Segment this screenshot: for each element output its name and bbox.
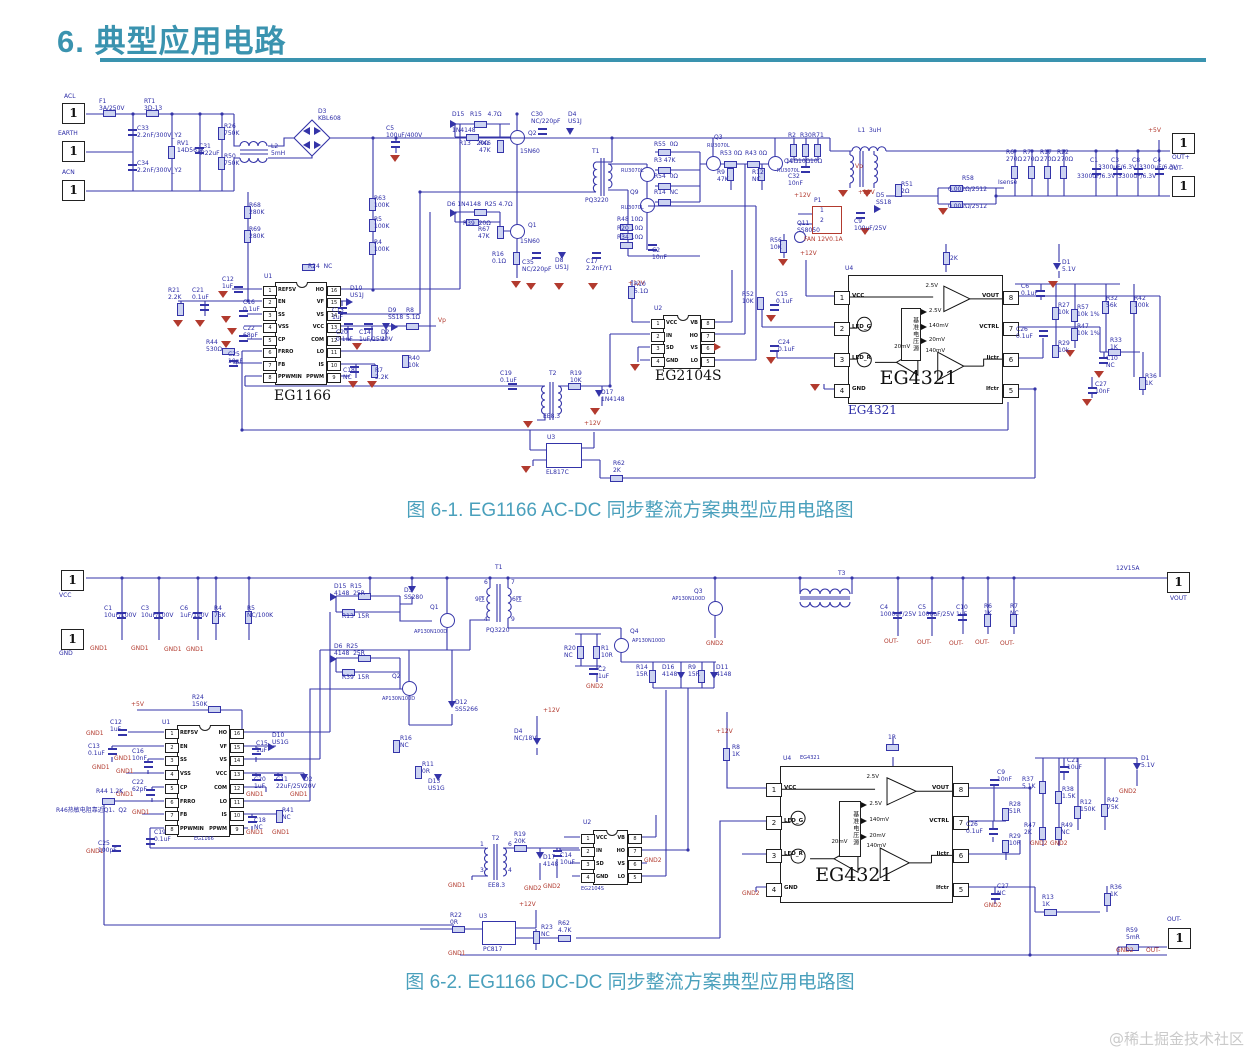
pin-name: VCTRL [979, 324, 999, 330]
resistor [1028, 166, 1035, 179]
component-label: GND2 [984, 903, 1002, 910]
pin-ho: 16 [327, 286, 341, 296]
component-label: R48 10Ω [617, 217, 643, 224]
component-label: D4 NC/18V [514, 729, 536, 743]
pin-name: VCC [313, 324, 324, 330]
component-label: R13 1K [1042, 895, 1054, 909]
component-label: R12 150K [1080, 800, 1095, 814]
component-label: R34 10Ω [617, 235, 643, 242]
connector-out-neg: 1 [1172, 176, 1195, 197]
component-label: U3 [479, 914, 487, 921]
component-label: C20 1uF [254, 777, 266, 791]
component-label: GND1 [246, 792, 264, 799]
component-label: R32 56k [1106, 296, 1118, 310]
component-label: GND2 [742, 891, 760, 898]
pin-vs: 6 [701, 344, 715, 354]
component-label: R40 10k [408, 356, 420, 370]
pin-fb: 7 [165, 811, 179, 821]
component-label: GND1 [90, 646, 108, 653]
component-label: OUT- [884, 639, 898, 646]
pin-name: VF [220, 744, 227, 750]
pin-ss: 3 [165, 756, 179, 766]
pin-lo: 5 [628, 873, 642, 883]
ground-icon [1048, 281, 1058, 288]
pin-name: VCC [216, 771, 227, 777]
resistor [415, 766, 422, 779]
component-label: OUT- [1167, 917, 1181, 924]
component-label: D6 1N4148 R25 4.7Ω [447, 202, 513, 209]
pin-name: LED_G [852, 324, 871, 330]
component-label: 10Ω [810, 159, 822, 166]
ic-eg1166-fig2: 1REF5V2EN3SS4VSS5CP6FRRO7FB8PPWMIN16HO15… [177, 725, 230, 837]
component-label: +12V [543, 708, 560, 715]
component-label: R5 100K [374, 217, 389, 231]
capacitor [391, 141, 400, 148]
component-label: 1R [888, 735, 896, 742]
component-label: 15N60 [520, 239, 540, 246]
component-label: D13 US1G [428, 779, 445, 793]
component-label: 6匝 [512, 597, 522, 604]
resistor [757, 297, 764, 310]
component-label: U1 [162, 720, 170, 727]
pin-in: 2 [651, 332, 665, 342]
resistor [558, 935, 571, 942]
pin-name: PPWMIN [180, 826, 204, 832]
component-label: 4 [508, 868, 512, 875]
component-label: R63 100K [374, 196, 389, 210]
component-label: R55 0Ω [654, 142, 678, 149]
component-label: R62 4.7K [558, 921, 571, 935]
ic-eg4321-fig2: 1VCC2LED_G3LED_R4GND8VOUT7VCTRL6Iictr5If… [780, 766, 953, 903]
component-label: R47 10k 1% [1077, 324, 1100, 338]
component-label: D9 SS18 [388, 308, 403, 322]
connector-earth: 1 [62, 141, 85, 162]
component-label: T3 [838, 571, 845, 578]
component-label: C4 1000uF/25V [880, 605, 916, 619]
pin-name: HO [316, 287, 324, 293]
resistor [1002, 840, 1009, 853]
component-label: GND1 [132, 810, 150, 817]
ground-icon [838, 190, 848, 197]
ground-icon [630, 364, 640, 371]
component-label: C15 1uF [256, 741, 268, 755]
pin-gnd: 4 [766, 883, 782, 897]
ground-icon [390, 155, 400, 162]
component-label: R43 0Ω [745, 151, 767, 158]
component-label: R9 15R [688, 665, 700, 679]
component-label: C24 0.1uF [778, 340, 795, 354]
capacitor [108, 748, 117, 755]
mosfet-icon [614, 638, 629, 653]
diode-icon [450, 209, 457, 217]
component-label: ACN [62, 170, 75, 177]
component-label: OUT- [949, 641, 963, 648]
component-label: +12V [858, 190, 875, 197]
component-label: R11 0R [422, 762, 434, 776]
component-label: 0.002Ω/2512 [948, 204, 987, 211]
pin-name: GND [784, 885, 798, 891]
capacitor [128, 164, 137, 171]
pin-vcc: 1 [766, 783, 782, 797]
pin-ifctr: 5 [1003, 384, 1019, 398]
ground-icon [1094, 371, 1104, 378]
resistor [649, 670, 656, 683]
ground-icon [938, 208, 948, 215]
capacitor [1039, 330, 1048, 337]
component-label: D15 R15 4.7Ω [452, 112, 502, 119]
resistor [1039, 781, 1046, 794]
component-label: U2 [583, 820, 591, 827]
component-label: R53 0Ω [720, 151, 742, 158]
pin-name: VOUT [932, 785, 949, 791]
resistor [1011, 166, 1018, 179]
pin-name: Ifctr [936, 885, 949, 891]
component-label: R33 1K [1110, 338, 1122, 352]
resistor [658, 149, 671, 156]
component-label: R54 0Ω [654, 174, 678, 181]
diode-icon [1133, 763, 1141, 770]
pin-name: VF [317, 299, 324, 305]
component-label: Q4 [630, 629, 639, 636]
resistor [514, 845, 527, 852]
component-label: Q3 [694, 589, 703, 596]
component-label: GND1 [86, 849, 104, 856]
component-label: L1 3uH [858, 128, 881, 135]
component-label: R4 100K [374, 240, 389, 254]
component-label: R27 10k [1058, 303, 1070, 317]
component-box [482, 921, 516, 945]
resistor [814, 144, 821, 157]
component-label: D10 US1G [272, 733, 289, 747]
component-label: D1 5.1V [1062, 260, 1076, 274]
pin-en: 2 [165, 743, 179, 753]
component-label: R21 2.2K [168, 288, 181, 302]
component-label: C22 68pF [243, 326, 258, 340]
component-label: +12V [519, 902, 536, 909]
pin-name: COM [311, 337, 324, 343]
resistor [406, 323, 419, 330]
component-label: GND1 [448, 883, 466, 890]
pin-lo: 11 [230, 798, 244, 808]
pin-name: EN [278, 299, 286, 305]
pin-ho: 16 [230, 729, 244, 739]
component-label: GND1 [92, 765, 110, 772]
component-label: C10 NC [1106, 356, 1118, 370]
comparator-threshold: 20mV [894, 344, 910, 350]
chip-notch-icon [677, 315, 689, 321]
component-label: R49 NC [1061, 823, 1073, 837]
pin-ho: 7 [628, 847, 642, 857]
ground-icon [588, 283, 598, 290]
pin-name: LED_R [784, 851, 803, 857]
component-label: Isense [998, 180, 1017, 187]
ground-icon [227, 328, 237, 335]
resistor [452, 926, 465, 933]
pin-ho: 7 [701, 332, 715, 342]
pin-ppwm: 9 [230, 825, 244, 835]
component-label: VCC [59, 593, 71, 600]
diode-icon [1053, 263, 1061, 270]
pin-name: Iictr [936, 851, 949, 857]
component-label: GND1 [186, 647, 204, 654]
pin-lo: 5 [701, 357, 715, 367]
pin-frro: 6 [263, 348, 277, 358]
component-label: D17 1N4148 [601, 390, 625, 404]
component-label: T1 [495, 565, 502, 572]
component-label: D5 SS18 [876, 193, 891, 207]
component-label: +12V [584, 421, 601, 428]
capacitor [538, 128, 547, 135]
component-label: R59 5mR [1126, 928, 1140, 942]
threshold-label: 2.5V [929, 308, 942, 314]
component-label: C30 NC/220pF [531, 112, 560, 126]
pin-led_r: 3 [766, 849, 782, 863]
component-label: T2 [549, 371, 556, 378]
component-label: U3 [547, 435, 555, 442]
component-label: R68 280K [249, 203, 264, 217]
component-label: R6 1K [984, 604, 992, 618]
component-label: R29 10R [1009, 834, 1021, 848]
pin-vs: 6 [628, 860, 642, 870]
component-label: R22 270Ω [1057, 150, 1073, 164]
component-label: EG2104S [581, 887, 604, 893]
connector-gnd: 1 [61, 629, 84, 650]
component-label: RU3070L [621, 169, 644, 175]
ground-icon [348, 381, 358, 388]
comparator-threshold: 2.5V [867, 774, 880, 780]
component-label: L2 5mH [271, 144, 285, 158]
capacitor [532, 252, 541, 259]
component-label: R17 270Ω [1040, 150, 1056, 164]
component-label: D11 4148 [716, 665, 731, 679]
pin-name: VCTRL [929, 818, 949, 824]
component-label: U2 [654, 306, 662, 313]
arrow-icon [861, 834, 867, 840]
component-label: R51 2Ω [901, 182, 913, 196]
component-label: R6 270Ω [1006, 150, 1022, 164]
resistor [747, 161, 760, 168]
pin-name: VCC [784, 785, 796, 791]
ground-icon [810, 384, 820, 391]
pin-name: FRRO [278, 349, 293, 355]
component-label: R8 1K [732, 745, 740, 759]
component-label: R39 15R [342, 675, 369, 682]
component-label: R46 47K [479, 141, 491, 155]
component-label: 7 [511, 580, 515, 587]
resistor [658, 199, 671, 206]
pin-name: PPWM [306, 374, 324, 380]
pin-sd: 3 [651, 344, 665, 354]
component-label: C35 NC/220pF [522, 260, 551, 274]
connector-acl: 1 [62, 103, 85, 124]
component-label: GND1 [448, 951, 466, 958]
component-label: T1 [592, 149, 599, 156]
component-label: EE8.3 [488, 883, 505, 890]
pin-ppwmin: 8 [263, 373, 277, 383]
component-label: C21 0.1uF [192, 288, 209, 302]
component-label: C27 10nF [1095, 382, 1110, 396]
threshold-label: 20mV [869, 833, 885, 839]
component-label: R14 NC [654, 190, 678, 197]
resistor [943, 252, 950, 265]
component-label: D1 5.1V [1141, 756, 1155, 770]
pin-name: GND [596, 874, 608, 880]
component-label: 2 [820, 218, 824, 225]
component-label: C26 0.1uF [1016, 327, 1033, 341]
ground-icon [554, 283, 564, 290]
pin-name: VB [690, 320, 698, 326]
pin-name: REF5V [180, 730, 198, 736]
component-label: R57 10k 1% [1077, 305, 1100, 319]
threshold-label: 20mV [929, 337, 945, 343]
datasheet-page: 6. 典型应用电路 [0, 0, 1260, 1063]
component-label: R7 270Ω [1023, 150, 1039, 164]
component-label: 1N4148 [452, 128, 476, 135]
component-label: R69 280K [249, 227, 264, 241]
connector-out-neg2: 1 [1168, 928, 1191, 949]
pin-vcc: 1 [651, 319, 665, 329]
resistor [168, 146, 175, 159]
eg4321-label: EG4321 [880, 367, 957, 389]
pin-vf: 15 [230, 743, 244, 753]
component-label: EG4321 [848, 404, 897, 418]
ground-icon [1082, 399, 1092, 406]
ground-icon [173, 320, 183, 327]
component-label: GND2 [644, 858, 662, 865]
resistor [802, 144, 809, 157]
component-label: C26 0.1uF [966, 822, 983, 836]
diode-icon [677, 672, 685, 679]
component-label: AP130N100D [382, 697, 415, 703]
pin-name: HO [219, 730, 227, 736]
resistor [723, 748, 730, 761]
component-label: R44 530Ω [206, 340, 222, 354]
component-label: 2K [950, 256, 958, 263]
component-label: C33 2.2nF/300V_Y2 [137, 126, 182, 140]
resistor [177, 303, 184, 316]
component-label: GND2 [543, 884, 561, 891]
component-label: GND1 [290, 792, 308, 799]
pin-name: HO [617, 848, 625, 854]
component-label: C1 [1090, 158, 1098, 165]
comparator-threshold: 140mV [926, 348, 946, 354]
vref-box: 基准电压源 [901, 308, 921, 361]
component-label: U4 [783, 756, 791, 763]
comparator-threshold: 20mV [831, 839, 847, 845]
pin-name: VCC [666, 320, 677, 326]
pin-name: IS [319, 362, 324, 368]
pin-name: LO [618, 874, 625, 880]
pin-name: Iictr [986, 355, 999, 361]
component-label: D3 KBL608 [318, 109, 341, 123]
component-label: 10Ω [786, 159, 798, 166]
component-label: RU3070L [621, 206, 644, 212]
component-label: R19 10K [570, 371, 582, 385]
pin-name: VOUT [982, 293, 999, 299]
ic-eg2104s-fig1: 1VCC2IN3SD4GND8VB7HO6VS5LO [663, 315, 701, 369]
mosfet-icon [510, 224, 525, 239]
component-label: C6 1uF/100V [180, 606, 209, 620]
pin-vcc: 1 [834, 291, 850, 305]
component-label: D12 SS5266 [455, 700, 478, 714]
pin-com: 12 [230, 784, 244, 794]
component-label: 1 [820, 208, 824, 215]
component-label: +5V [131, 702, 144, 709]
component-label: C13 1uF [332, 308, 344, 322]
pin-name: VS [691, 345, 698, 351]
resistor [1044, 166, 1051, 179]
pin-gnd: 4 [651, 357, 665, 367]
component-label: 3 [480, 868, 484, 875]
pin-name: VS [317, 312, 324, 318]
threshold-label: 140mV [929, 323, 949, 329]
component-label: R67 47K [478, 227, 490, 241]
resistor [497, 140, 504, 153]
component-label: D4 US1J [568, 112, 582, 126]
component-label: Q11 SS8050 [797, 221, 820, 235]
component-label: EG4321 [800, 756, 820, 762]
component-label: R52 10K [742, 292, 754, 306]
component-label: EG1166 [194, 837, 214, 843]
component-label: EG1166 [274, 388, 331, 404]
pin-vout: 8 [1003, 291, 1019, 305]
ground-icon [218, 291, 228, 298]
pin-name: VCC [852, 293, 864, 299]
ground-icon [523, 421, 533, 428]
capacitor [589, 668, 598, 675]
component-label: C12 1uF [110, 720, 122, 734]
component-label: R71 [812, 133, 824, 140]
component-label: 6 [508, 842, 512, 849]
component-label: R26 750K [224, 124, 239, 138]
component-label: GND1 [114, 756, 132, 763]
component-label: EG2104S [655, 368, 722, 384]
comparator-threshold: 140mV [867, 843, 887, 849]
pin-name: VS [618, 861, 625, 867]
pin-gnd: 4 [834, 384, 850, 398]
ground-icon [521, 466, 531, 473]
component-label: C27 NC [997, 884, 1009, 898]
component-label: C5 100uF/400V [386, 126, 422, 140]
pin-vb: 8 [701, 319, 715, 329]
component-label: T2 [492, 836, 499, 843]
vref-box: 基准电压源 [839, 801, 861, 857]
component-label: R36 1K [1145, 374, 1157, 388]
pin-name: LO [691, 358, 698, 364]
component-label: R3 47K [654, 158, 675, 165]
component-label: EL817C [546, 470, 569, 477]
pin-name: VSS [180, 771, 191, 777]
mosfet-icon [440, 613, 455, 628]
component-label: C34 2.2nF/300V_Y2 [137, 161, 182, 175]
component-label: GND2 [1050, 841, 1068, 848]
component-label: OUT- [1146, 948, 1160, 955]
component-label: PQ3220 [585, 198, 609, 205]
resistor [724, 161, 737, 168]
ic-eg2104s-fig2: 1VCC2IN3SD4GND8VB7HO6VS5LO [593, 830, 628, 885]
resistor [393, 740, 400, 753]
chip-notch-icon [199, 725, 211, 731]
resistor [533, 931, 540, 944]
component-label: R8 5.1Ω [406, 308, 420, 322]
component-label: GND2 [1119, 789, 1137, 796]
component-label: C25 10pF [228, 352, 243, 366]
pin-lo: 11 [327, 348, 341, 358]
pin-name: CP [180, 785, 187, 791]
component-label: F1 3A/250V [99, 99, 125, 113]
component-label: C19 0.1uF [154, 830, 171, 844]
comparator-threshold: 2.5V [926, 283, 939, 289]
